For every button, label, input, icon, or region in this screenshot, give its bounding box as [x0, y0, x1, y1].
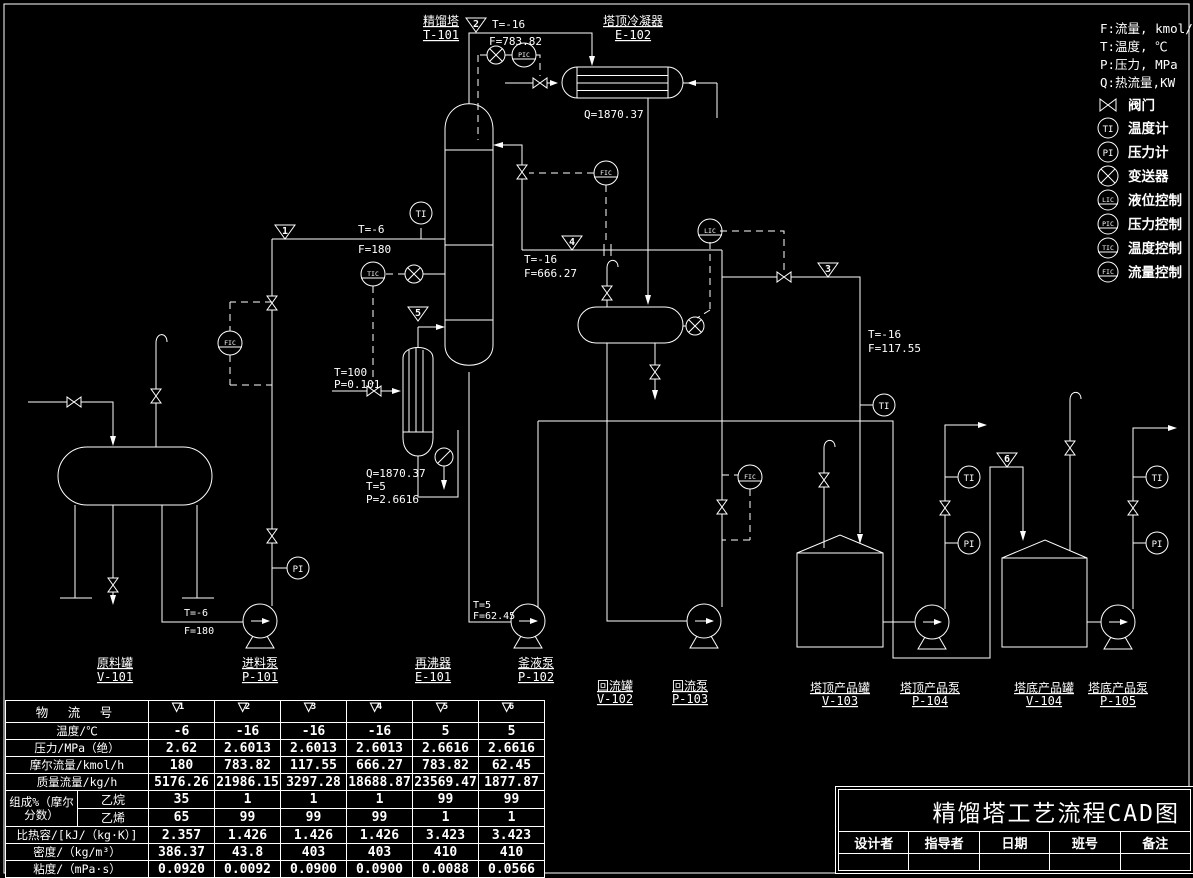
label-t101-name: 精馏塔	[423, 14, 459, 28]
legend-pi-label: 压力计	[1128, 144, 1169, 161]
cell: 403	[281, 844, 347, 861]
empty-row	[839, 854, 1191, 871]
label-v102-tag: V-102	[597, 692, 633, 706]
label-v104-tag: V-104	[1026, 694, 1062, 708]
cell: 180	[149, 757, 215, 774]
controller-fic-reflux: FIC	[594, 161, 618, 185]
component-label: 乙烷	[78, 791, 149, 809]
legend-unit-flow: F:流量, kmol/h	[1100, 21, 1193, 36]
stream-flag-header: 2	[215, 701, 281, 723]
arrow-condensate-icon	[441, 480, 447, 490]
cell: 2.6616	[479, 740, 545, 757]
bottoms-temp: T=5	[473, 600, 491, 611]
arrow-into-v104-icon	[1020, 531, 1026, 541]
label-p101-tag: P-101	[242, 670, 278, 684]
arrow-reflux-into-column-icon	[493, 142, 503, 148]
valve-icon	[67, 397, 81, 407]
cell: 1	[413, 809, 479, 827]
valve-icon	[533, 78, 547, 88]
label-p101-name: 进料泵	[242, 656, 278, 670]
legend-pic-icon: PIC	[1098, 214, 1118, 234]
feedpump-flow: F=180	[184, 626, 214, 637]
cell: 2.62	[149, 740, 215, 757]
row-label: 比热容/[kJ/（kg·K）]	[6, 827, 149, 844]
arrow-cw-right-icon	[687, 80, 696, 86]
title-block: 精馏塔工艺流程CAD图 设计者 指导者 日期 班号 备注	[835, 786, 1193, 874]
cell: 2.6013	[281, 740, 347, 757]
overhead-flow: F=783.82	[489, 35, 542, 48]
stream-number: 2	[238, 701, 258, 713]
tic-label: TIC	[367, 270, 379, 278]
cell: 1.426	[347, 827, 413, 844]
pump-p105	[1101, 605, 1135, 649]
cell: -16	[281, 723, 347, 740]
label-p105-name: 塔底产品泵	[1088, 680, 1148, 695]
fic-label: FIC	[224, 339, 236, 347]
cell: 1	[281, 791, 347, 809]
cell: 2.6013	[347, 740, 413, 757]
arrow-feedtank-drain-icon	[110, 595, 116, 605]
stream-number: 5	[415, 308, 421, 319]
reboiler-pressure: P=2.6616	[366, 493, 419, 506]
table-row-density: 密度/（kg/m³） 386.37 43.8 403 403 410 410	[6, 844, 545, 861]
table-row-streams: 物 流 号 1 2 3 4 5 6	[6, 701, 545, 723]
stream-flag-header: 3	[281, 701, 347, 723]
feed-temp: T=-6	[358, 223, 385, 236]
title-row: 精馏塔工艺流程CAD图	[839, 790, 1191, 832]
table-row-molar-flow: 摩尔流量/kmol/h 180 783.82 117.55 666.27 783…	[6, 757, 545, 774]
field-designer: 设计者	[839, 832, 909, 854]
reflux-drum-v102	[578, 307, 683, 343]
bottoms-flow: F=62.45	[473, 611, 515, 622]
cell: 0.0092	[215, 861, 281, 878]
ti-label: TI	[879, 402, 890, 412]
field-supervisor: 指导者	[909, 832, 979, 854]
cell: 2.6013	[215, 740, 281, 757]
label-e101-name: 再沸器	[415, 656, 451, 670]
cell: 23569.47	[413, 774, 479, 791]
component-label: 乙烯	[78, 809, 149, 827]
table-row-heat-capacity: 比热容/[kJ/（kg·K）] 2.357 1.426 1.426 1.426 …	[6, 827, 545, 844]
cell: 0.0920	[149, 861, 215, 878]
table-row-ethane: 组成%（摩尔分数） 乙烷 35 1 1 1 99 99	[6, 791, 545, 809]
piping-lines	[28, 33, 1169, 658]
legend-valve-label: 阀门	[1128, 97, 1155, 114]
row-label: 摩尔流量/kmol/h	[6, 757, 149, 774]
cell: 99	[281, 809, 347, 827]
cell: 3.423	[413, 827, 479, 844]
cell: 65	[149, 809, 215, 827]
ti-label: TI	[416, 210, 427, 220]
legend-fic-label: 流量控制	[1128, 264, 1182, 281]
overhead-temp: T=-16	[492, 18, 525, 31]
valve-icon	[267, 529, 277, 543]
arrow-drum-drain-icon	[652, 390, 658, 400]
ti-distillate: TI	[873, 394, 895, 416]
arrow-into-feedtank-icon	[110, 436, 116, 446]
cell: 0.0900	[347, 861, 413, 878]
cell: 0.0566	[479, 861, 545, 878]
table-row-pressure: 压力/MPa（绝） 2.62 2.6013 2.6013 2.6013 2.66…	[6, 740, 545, 757]
value-class	[1050, 854, 1120, 871]
transmitter-drumlevel-icon	[686, 317, 704, 335]
cell: 410	[479, 844, 545, 861]
valve-icon	[717, 500, 727, 514]
cell: 0.0088	[413, 861, 479, 878]
feed-tank-v101	[58, 447, 212, 505]
legend-transmitter-icon	[1098, 166, 1118, 186]
pi-label: PI	[293, 565, 304, 575]
cell: 5	[479, 723, 545, 740]
pump-p104	[915, 605, 949, 649]
cell: 99	[413, 791, 479, 809]
stream-number: 6	[502, 701, 522, 713]
label-p102-tag: P-102	[518, 670, 554, 684]
pump-p103	[687, 604, 721, 648]
pi-p105-line: PI	[1146, 532, 1168, 554]
cell: 99	[347, 809, 413, 827]
stream-flag-2: 2	[466, 18, 486, 32]
label-v102-name: 回流罐	[597, 679, 633, 693]
cell: 2.357	[149, 827, 215, 844]
pi-label: PI	[964, 540, 975, 550]
stream-flag-4: 4	[562, 236, 582, 250]
stream-annotations: T=-16 F=783.82 Q=1870.37 T=-6 F=180 T=-1…	[184, 18, 921, 637]
label-p102-name: 釜液泵	[518, 655, 554, 670]
product-tank-v103	[797, 535, 883, 647]
cell: 403	[347, 844, 413, 861]
cell: 1.426	[215, 827, 281, 844]
cell: 1.426	[281, 827, 347, 844]
reboiler-duty: Q=1870.37	[366, 467, 426, 480]
valve-icon	[267, 296, 277, 310]
lic-label: LIC	[704, 227, 716, 235]
stream-number: 1	[172, 701, 192, 713]
stream-flag-header: 4	[347, 701, 413, 723]
controller-lic: LIC	[698, 219, 722, 243]
pump-p102	[511, 604, 545, 648]
transmitter-overhead-icon	[487, 46, 505, 64]
stream-number: 3	[304, 701, 324, 713]
valve-icon	[819, 473, 829, 487]
label-v101-tag: V-101	[97, 670, 133, 684]
cell: 783.82	[215, 757, 281, 774]
cell: 5176.26	[149, 774, 215, 791]
pi-p101-line: PI	[287, 557, 309, 579]
stream-flag-1: 1	[275, 225, 295, 239]
legend-lic-symbol: LIC	[1102, 196, 1114, 204]
cell: 1	[347, 791, 413, 809]
value-date	[979, 854, 1049, 871]
stream-flag-3: 3	[818, 263, 838, 277]
product-tank-v104	[1002, 540, 1087, 647]
distillate-flow: F=117.55	[868, 342, 921, 355]
legend-fic-icon: FIC	[1098, 262, 1118, 282]
valve-icon	[650, 365, 660, 379]
table-row-ethylene: 乙烯 65 99 99 99 1 1	[6, 809, 545, 827]
ti-label: TI	[964, 474, 975, 484]
cell: 5	[413, 723, 479, 740]
valve-icon	[940, 501, 950, 515]
fic-label: FIC	[600, 169, 612, 177]
reboiler-temp: T=5	[366, 480, 386, 493]
table-row-temperature: 温度/℃ -6 -16 -16 -16 5 5	[6, 723, 545, 740]
label-p104-tag: P-104	[912, 694, 948, 708]
pump-p101	[243, 604, 277, 648]
arrow-product-bottom-icon	[1168, 425, 1177, 431]
legend-unit-pressure: P:压力, MPa	[1100, 57, 1178, 72]
value-designer	[839, 854, 909, 871]
valve-icon	[108, 578, 118, 592]
reboiler-e101	[403, 348, 453, 467]
stream-flag-header: 1	[149, 701, 215, 723]
label-v103-name: 塔顶产品罐	[810, 681, 870, 695]
stream-number: 4	[370, 701, 390, 713]
pic-label: PIC	[518, 51, 530, 59]
value-notes	[1120, 854, 1190, 871]
cell: 18688.87	[347, 774, 413, 791]
stream-number: 6	[1004, 454, 1010, 465]
label-p103-tag: P-103	[672, 692, 708, 706]
label-p103-name: 回流泵	[672, 679, 708, 693]
pi-p104-line: PI	[958, 532, 980, 554]
stream-number: 1	[282, 226, 288, 237]
legend-tic-symbol: TIC	[1102, 244, 1114, 252]
table-header-label: 物 流 号	[6, 701, 149, 723]
ti-p105-line: TI	[1146, 466, 1168, 488]
ti-p104-line: TI	[958, 466, 980, 488]
arrow-into-condenser-icon	[589, 56, 595, 66]
stream-flag-header: 5	[413, 701, 479, 723]
cell: -6	[149, 723, 215, 740]
value-supervisor	[909, 854, 979, 871]
valve-icon	[151, 389, 161, 403]
table-row-mass-flow: 质量流量/kg/h 5176.26 21986.15 3297.28 18688…	[6, 774, 545, 791]
valve-icon	[1128, 501, 1138, 515]
distillate-temp: T=-16	[868, 328, 901, 341]
label-v103-tag: V-103	[822, 694, 858, 708]
legend-valve-icon	[1100, 99, 1116, 111]
arrow-cw-in-icon	[550, 80, 558, 86]
cell: 99	[479, 791, 545, 809]
cell: 117.55	[281, 757, 347, 774]
cell: 1	[215, 791, 281, 809]
controller-tic: TIC	[361, 262, 385, 286]
arrow-product-top-icon	[978, 422, 987, 428]
cad-sheet: TI TI TI TI PI PI PI PIC TIC FIC FIC	[0, 0, 1193, 878]
legend-lic-icon: LIC	[1098, 190, 1118, 210]
field-row: 设计者 指导者 日期 班号 备注	[839, 832, 1191, 854]
cell: 386.37	[149, 844, 215, 861]
label-p104-name: 塔顶产品泵	[900, 681, 960, 695]
valve-icon	[777, 272, 791, 282]
row-label: 压力/MPa（绝）	[6, 740, 149, 757]
legend-ti-symbol: TI	[1103, 125, 1114, 135]
cell: 0.0900	[281, 861, 347, 878]
legend-transmitter-label: 变送器	[1128, 168, 1169, 185]
legend-pic-label: 压力控制	[1128, 216, 1182, 233]
label-t101-tag: T-101	[423, 28, 459, 42]
pi-label: PI	[1152, 540, 1163, 550]
ti-feed: TI	[410, 202, 432, 224]
legend-lic-label: 液位控制	[1128, 192, 1182, 209]
cell: -16	[347, 723, 413, 740]
legend-unit-temp: T:温度, ℃	[1100, 39, 1168, 54]
arrow-into-drum-icon	[645, 295, 651, 305]
steam-pressure: P=0.101	[334, 378, 380, 391]
cell: 99	[215, 809, 281, 827]
controller-fic-feed: FIC	[218, 331, 242, 355]
fic-label: FIC	[744, 473, 756, 481]
stream-flag-6: 6	[997, 453, 1017, 467]
column-t101	[445, 104, 493, 366]
row-label: 密度/（kg/m³）	[6, 844, 149, 861]
label-p105-tag: P-105	[1100, 694, 1136, 708]
legend-pic-symbol: PIC	[1102, 220, 1114, 228]
legend-fic-symbol: FIC	[1102, 268, 1114, 276]
cell: 35	[149, 791, 215, 809]
label-v101-name: 原料罐	[97, 656, 133, 670]
cell: 3297.28	[281, 774, 347, 791]
legend-unit-heat: Q:热流量,KW	[1100, 75, 1176, 90]
stream-number: 2	[473, 19, 479, 30]
legend: F:流量, kmol/h T:温度, ℃ P:压力, MPa Q:热流量,KW …	[1098, 21, 1193, 282]
stream-number: 5	[436, 701, 456, 713]
flow-arrow-icons	[110, 56, 1177, 605]
label-e102-tag: E-102	[615, 28, 651, 42]
cell: 2.6616	[413, 740, 479, 757]
cell: 410	[413, 844, 479, 861]
table-row-viscosity: 粘度/（mPa·s） 0.0920 0.0092 0.0900 0.0900 0…	[6, 861, 545, 878]
row-label: 温度/℃	[6, 723, 149, 740]
reflux-temp: T=-16	[524, 253, 557, 266]
stream-number: 3	[825, 264, 831, 275]
label-v104-name: 塔底产品罐	[1014, 680, 1074, 695]
valve-icon	[517, 165, 527, 179]
field-class: 班号	[1050, 832, 1120, 854]
valve-icon	[602, 286, 612, 300]
cell: 666.27	[347, 757, 413, 774]
feedpump-temp: T=-6	[184, 608, 208, 619]
cell: 43.8	[215, 844, 281, 861]
feed-flow: F=180	[358, 243, 391, 256]
arrow-steam-icon	[392, 388, 401, 394]
legend-pi-symbol: PI	[1103, 149, 1114, 159]
transmitter-feedtemp-icon	[405, 265, 423, 283]
drawing-title: 精馏塔工艺流程CAD图	[839, 790, 1191, 832]
cell: 21986.15	[215, 774, 281, 791]
row-label: 粘度/（mPa·s）	[6, 861, 149, 878]
cell: 3.423	[479, 827, 545, 844]
valve-icons	[67, 78, 1138, 592]
steam-trap-icon	[435, 448, 453, 466]
stream-number: 4	[569, 237, 575, 248]
cell: 62.45	[479, 757, 545, 774]
cell: 783.82	[413, 757, 479, 774]
arrow-vapor-into-column-icon	[436, 324, 445, 330]
composition-label: 组成%（摩尔分数）	[6, 791, 78, 827]
legend-ti-label: 温度计	[1128, 120, 1169, 137]
label-e101-tag: E-101	[415, 670, 451, 684]
field-date: 日期	[979, 832, 1049, 854]
field-notes: 备注	[1120, 832, 1190, 854]
condenser-duty: Q=1870.37	[584, 108, 644, 121]
valve-icon	[1065, 441, 1075, 455]
label-e102-name: 塔顶冷凝器	[603, 13, 663, 28]
legend-tic-icon: TIC	[1098, 238, 1118, 258]
stream-data-table: 物 流 号 1 2 3 4 5 6 温度/℃ -6 -16 -16 -16 5 …	[5, 700, 545, 878]
reflux-flow: F=666.27	[524, 267, 577, 280]
row-label: 质量流量/kg/h	[6, 774, 149, 791]
cell: -16	[215, 723, 281, 740]
legend-tic-label: 温度控制	[1128, 240, 1182, 257]
cell: 1877.87	[479, 774, 545, 791]
condenser-e102	[562, 67, 683, 98]
cell: 1	[479, 809, 545, 827]
stream-flag-header: 6	[479, 701, 545, 723]
stream-flag-5: 5	[408, 307, 428, 321]
controller-fic-p103: FIC	[738, 465, 762, 489]
ti-label: TI	[1152, 474, 1163, 484]
